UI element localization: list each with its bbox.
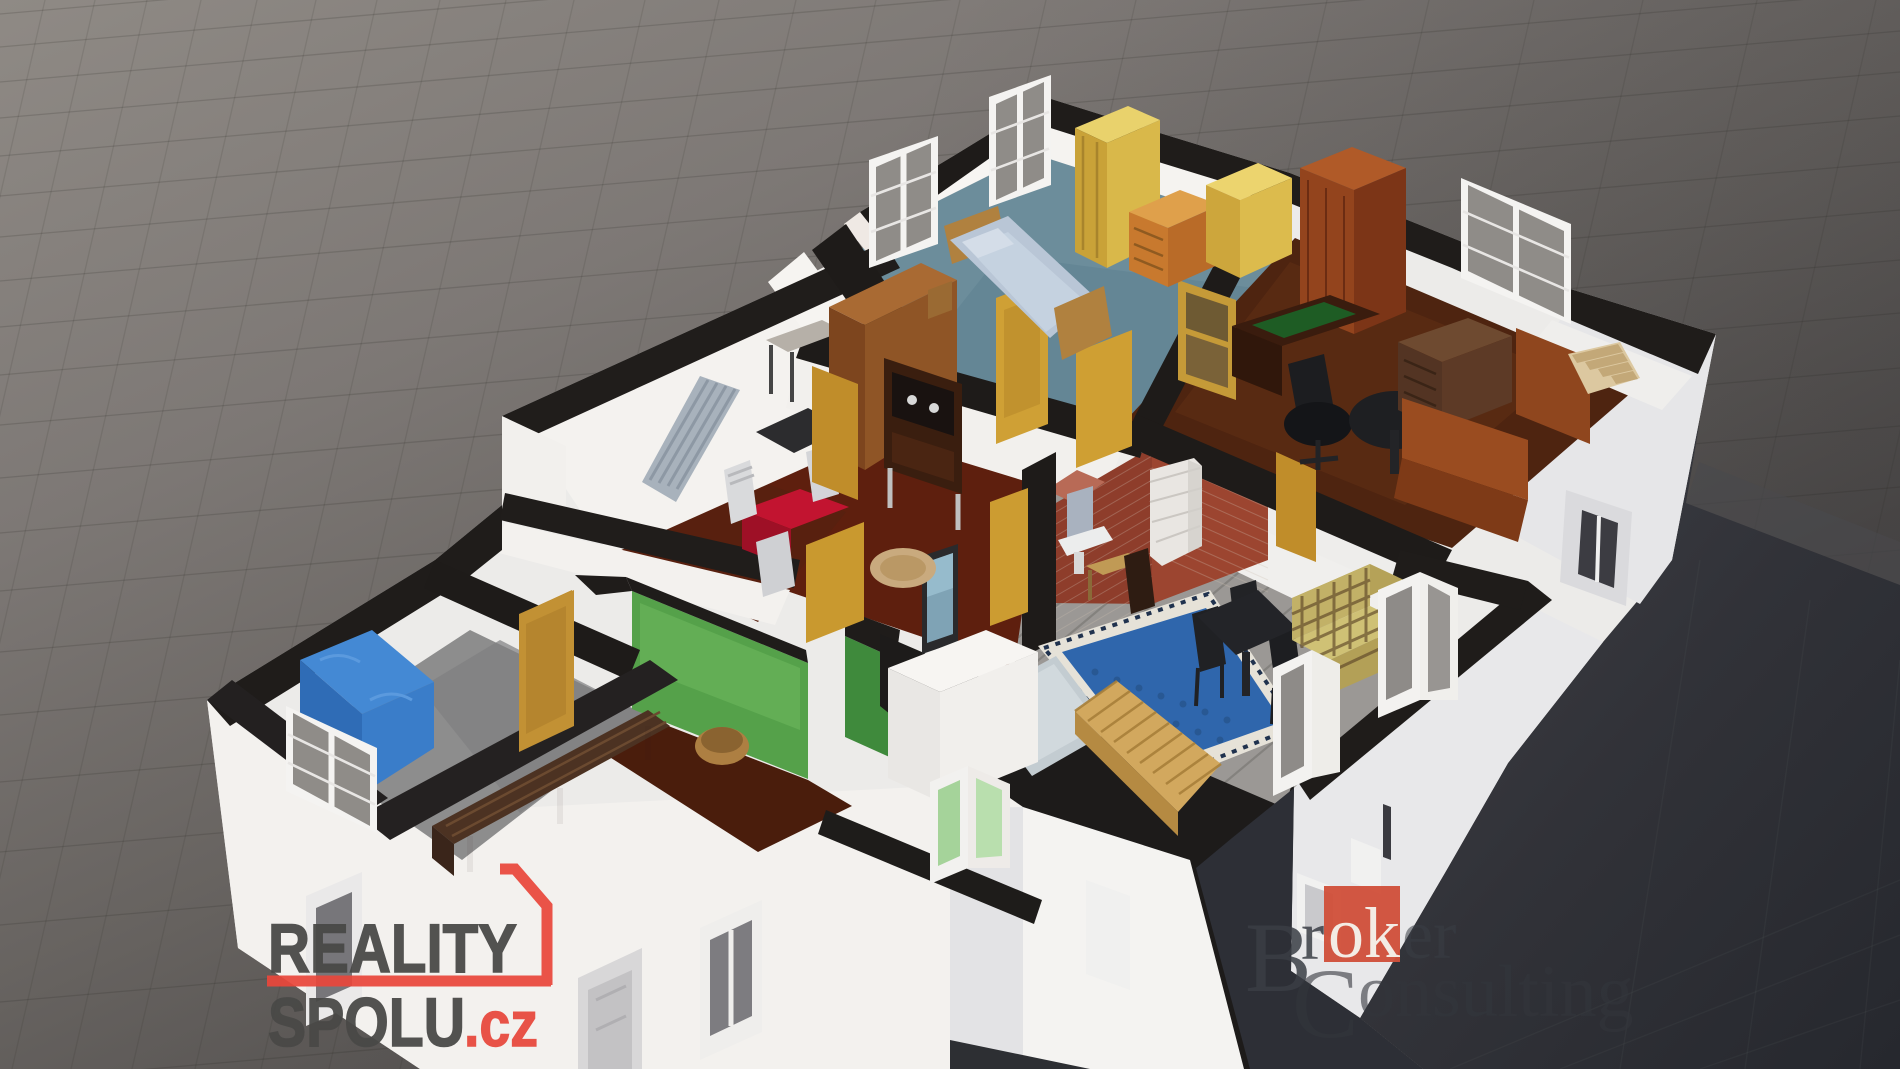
- svg-text:.cz: .cz: [464, 988, 538, 1060]
- svg-text:SPOLU: SPOLU: [268, 984, 465, 1061]
- svg-text:C: C: [1292, 948, 1359, 1059]
- svg-text:onsulting: onsulting: [1358, 951, 1633, 1033]
- svg-text:REALITY: REALITY: [268, 910, 517, 987]
